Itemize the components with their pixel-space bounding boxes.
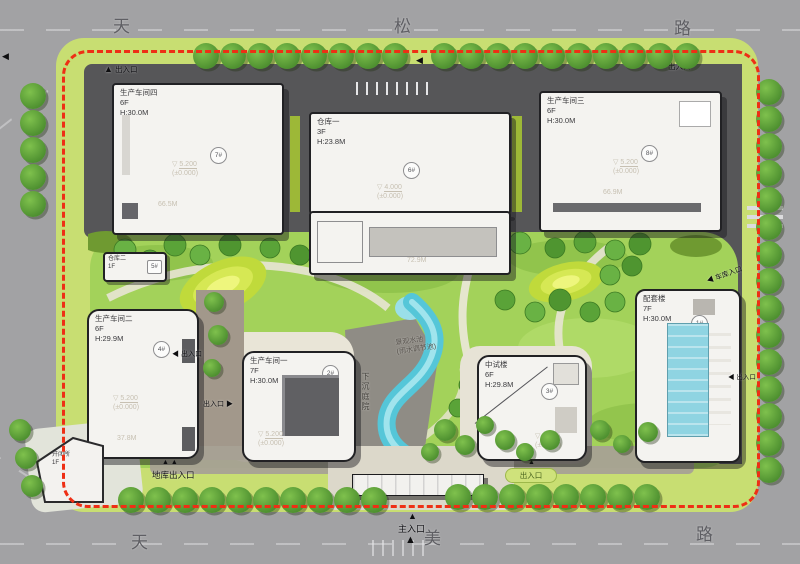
tree-icon [164,234,186,256]
tree-icon [605,240,625,260]
tree-icon [193,43,219,69]
tree-icon [9,419,31,441]
double-arrow-up-icon: ▲ ▲ [162,459,178,466]
tree-icon [629,233,651,255]
roof-detail [553,363,579,385]
tree-icon [421,443,439,461]
tree-icon [274,43,300,69]
tree-icon [525,302,545,322]
tree-icon [20,137,46,163]
site-plan: 生产车间四 6F H:30.0M 7# ▽ 5.200 (±0.000) 66.… [0,0,800,564]
tree-icon [355,43,381,69]
tree-icon [756,241,782,267]
tree-icon [580,484,606,510]
building-warehouse1-wing: 72.9M [309,211,511,275]
tree-icon [382,43,408,69]
building-switch-station [35,436,105,504]
tree-icon [455,435,475,455]
building-pilot: 中试楼 6F H:29.8M 3# ▽ 5.200 (±0.000) [477,355,587,461]
tree-icon [253,487,279,513]
tree-icon [756,214,782,240]
dimension-label: 72.9M [407,257,426,264]
tree-icon [756,349,782,375]
tree-icon [622,256,642,276]
tree-icon [756,79,782,105]
tree-icon [539,43,565,69]
tree-icon [247,43,273,69]
tree-icon [674,43,700,69]
road-name-bottom-2: 美 [424,524,441,549]
entrance-badge-south: 出入口 [505,468,557,483]
roof-detail [122,115,130,175]
roof-detail [282,375,339,436]
sunken-courtyard-label: 下沉庭院 [360,372,371,412]
elevation-note: ▽ 5.200 (±0.000) [113,395,139,413]
tree-icon [756,268,782,294]
entrance-top-left: ▲ 出入口 [104,64,138,75]
elevation-note: ▽ 5.200 (±0.000) [172,161,198,179]
tree-icon [526,484,552,510]
tree-icon [20,164,46,190]
building-number-badge: 4# [153,341,170,358]
crosswalk [372,540,432,556]
tree-icon [21,475,43,497]
arrow-up-icon: ▲ [104,64,113,74]
arrow-up-icon: ▲ [405,535,416,546]
tree-icon [118,487,144,513]
tree-icon [756,322,782,348]
tree-icon [20,191,46,217]
tree-icon [756,376,782,402]
tree-icon [756,430,782,456]
switch-station-label: 开闭所 1F [52,452,70,468]
roof-detail [679,101,711,127]
tree-icon [756,403,782,429]
tree-icon [226,487,252,513]
elevation-mark-icon: ▽ [113,395,118,402]
tree-icon [458,43,484,69]
tree-icon [540,430,560,450]
tree-icon [495,290,515,310]
building-label: 配套楼 7F H:30.0M [643,294,671,323]
tree-icon [638,422,658,442]
tree-icon [199,487,225,513]
building-label: 中试楼 6F H:29.8M [485,360,513,389]
arrow-left-icon: ◀ [2,52,9,61]
tree-icon [476,416,494,434]
tree-icon [220,43,246,69]
tree-icon [20,83,46,109]
tree-icon [590,420,610,440]
tree-icon [431,43,457,69]
shrub-mass [670,235,722,257]
tree-icon [545,238,565,258]
road-name-bottom-3: 路 [696,520,713,545]
building-label: 仓库二 1F [108,256,126,272]
arrow-left-icon: ◀ [172,351,179,358]
dimension-label: 66.5M [158,201,177,208]
road-name-top-3: 路 [674,14,691,39]
glass-atrium [667,323,709,437]
tree-icon [574,231,596,253]
tree-icon [512,43,538,69]
roof-detail [369,227,497,257]
tree-icon [647,43,673,69]
tree-icon [172,487,198,513]
tree-icon [260,238,280,258]
tree-icon [580,302,600,322]
tree-icon [434,419,456,441]
road-name-top-2: 松 [394,12,411,37]
roof-detail [182,427,195,451]
tree-icon [499,484,525,510]
building-number-badge: 8# [641,145,658,162]
building-workshop4: 生产车间四 6F H:30.0M 7# ▽ 5.200 (±0.000) 66.… [112,83,284,235]
tree-icon [280,487,306,513]
tree-icon [509,232,531,254]
building-label: 生产车间三 6F H:30.0M [547,96,585,125]
building-label: 生产车间二 6F H:29.9M [95,314,133,343]
tree-icon [566,43,592,69]
tree-icon [756,457,782,483]
tree-icon [613,435,631,453]
tree-icon [553,484,579,510]
tree-icon [593,43,619,69]
elevation-note: ▽ 5.200 (±0.000) [258,431,284,449]
roof-detail [555,407,577,433]
tree-icon [204,292,224,312]
tree-icon [472,484,498,510]
tree-icon [361,487,387,513]
tree-icon [290,245,310,265]
tree-icon [620,43,646,69]
building-number-badge: 6# [403,162,420,179]
building-workshop3: 生产车间三 6F H:30.0M 8# ▽ 5.200 (±0.000) 66.… [539,91,722,232]
tree-icon [607,484,633,510]
west-internal-road [196,290,244,460]
hedge [512,116,522,212]
building-label: 仓库一 3F H:23.8M [317,117,345,146]
tree-icon [756,160,782,186]
entrance-east-mid: ◀ 出入口 [728,371,756,382]
tree-icon [756,106,782,132]
elevation-mark-icon: ▽ [377,184,382,191]
tree-icon [203,359,221,377]
arrow-left-icon: ◀ [706,276,715,285]
arrow-left-icon: ◀ [416,56,423,65]
tree-icon [485,43,511,69]
elevation-mark-icon: ▽ [613,159,618,166]
dimension-label: 66.9M [603,189,622,196]
building-number-badge: 5# [147,260,162,274]
entrance-garage-south: 地库出入口 [152,469,195,481]
tree-icon [208,325,228,345]
roof-detail [553,203,701,212]
building-number-badge: 7# [210,147,227,164]
building-warehouse1: 仓库一 3F H:23.8M 6# ▽ 4.000 (±0.000) [309,112,511,215]
tree-icon [549,289,571,311]
roof-detail [122,203,138,219]
arrow-right-icon: ▶ [226,401,233,408]
elevation-mark-icon: ▽ [258,431,263,438]
roof-detail [693,299,715,315]
entrance-west-mid: ◀ 出入口 [172,349,202,359]
road-name-bottom-1: 天 [131,528,148,553]
tree-icon [145,487,171,513]
tree-icon [190,245,210,265]
roof-detail [317,221,363,263]
elevation-note: ▽ 5.200 (±0.000) [613,159,639,177]
tree-icon [634,484,660,510]
parking-stalls [356,82,436,95]
tree-icon [600,265,620,285]
tree-icon [756,295,782,321]
tree-icon [334,487,360,513]
dimension-label: 37.8M [117,435,136,442]
tree-icon [445,484,471,510]
building-number-badge: 3# [541,383,558,400]
entrance-west-low: 出入口 ▶ [203,399,233,409]
tree-icon [495,430,515,450]
tree-icon [756,187,782,213]
tree-icon [15,447,37,469]
tree-icon [219,234,241,256]
tree-icon [516,443,534,461]
tree-icon [301,43,327,69]
tree-icon [605,292,625,312]
arrow-up-icon: ▲ [408,512,417,521]
building-warehouse2: 仓库二 1F 5# [103,252,167,282]
tree-icon [307,487,333,513]
arrow-up-icon: ▲ [528,459,535,466]
building-label: 生产车间四 6F H:30.0M [120,88,158,117]
building-workshop1: 生产车间一 7F H:30.0M 2# ▽ 5.200 (±0.000) [242,351,356,462]
tree-icon [20,110,46,136]
arrow-left-icon: ◀ [728,374,735,381]
hedge [290,116,300,212]
road-name-top-1: 天 [113,12,130,37]
tree-icon [328,43,354,69]
elevation-mark-icon: ▽ [172,161,177,168]
tree-icon [756,133,782,159]
elevation-note: ▽ 4.000 (±0.000) [377,184,403,202]
